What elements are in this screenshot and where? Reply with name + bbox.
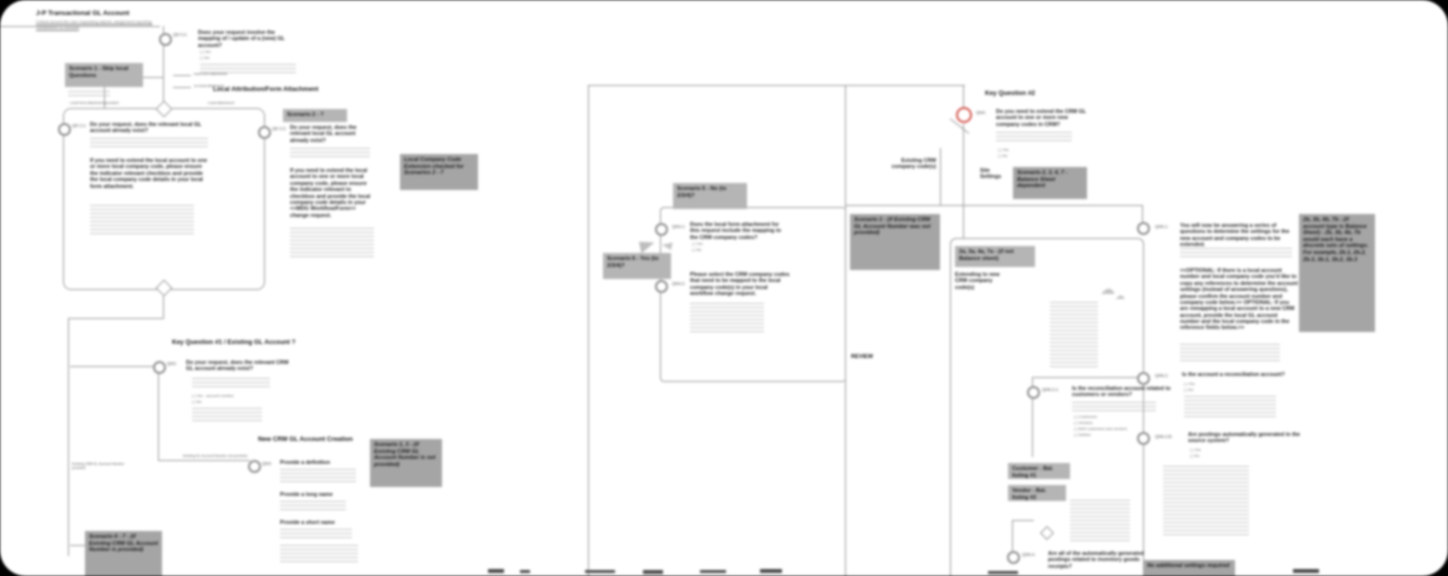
decision-node-qn21[interactable] (58, 123, 71, 136)
scenario-box-2[interactable]: Scenario 2 - ? (283, 109, 347, 122)
decision-node-qn3[interactable] (248, 460, 261, 473)
connector-line (1012, 520, 1013, 553)
cut-off-text-fragment (643, 570, 663, 574)
section-header-kq1: Key Question #1 / Existing GL Account ? (172, 339, 296, 346)
question-text: Does your request involve the mapping of… (198, 30, 286, 49)
connector-line (845, 205, 1142, 206)
fine-print (90, 138, 208, 148)
question-text: Are all of the automatically generated p… (1048, 551, 1158, 570)
node-label: QN 0.1: (173, 32, 188, 37)
decision-node-qn42[interactable] (655, 280, 668, 293)
fine-print (290, 228, 374, 258)
fine-print (280, 545, 358, 565)
scenario-box-1[interactable]: Scenario 1 - Skip local Questions (65, 63, 143, 87)
option[interactable]: ( ) Yes (1184, 382, 1195, 388)
connector-line (1012, 520, 1034, 521)
note-box-local-cc-extension[interactable]: Local Company Code Extension checked for… (400, 154, 478, 190)
connector-label: Existing GL Account Number not provided (183, 454, 247, 458)
cut-off-text-fragment (520, 570, 530, 573)
extending-label: Extending to new CRM company code(s) (955, 272, 1013, 291)
decision-node-qn41[interactable] (655, 223, 668, 236)
form-item: Provide a definition (280, 460, 360, 466)
decision-node-qn2[interactable] (153, 361, 166, 374)
diagram-title: J-P Transactional GL Account (36, 10, 176, 17)
connector-line (1142, 205, 1143, 223)
section-header-local-attachment: Local Attribution/Form Attachment (213, 86, 318, 93)
flowchart-canvas: J-P Transactional GL Account Criteria ar… (0, 0, 1448, 576)
connector-line (68, 318, 164, 319)
connector-line (68, 318, 69, 556)
cloud-icon: ☁ (1115, 291, 1125, 302)
option[interactable]: ( ) Yes (998, 148, 1009, 154)
option[interactable]: ( ) Yes - account number: (192, 394, 234, 400)
fine-print (290, 148, 370, 160)
form-item: Provide a short name (280, 520, 360, 526)
option[interactable]: ( ) No (200, 56, 210, 62)
connector-line (70, 366, 154, 367)
decision-node-qn01[interactable] (159, 33, 172, 46)
fine-print (280, 501, 346, 511)
fine-print (1180, 248, 1292, 260)
connector-line (173, 87, 191, 88)
question-text: Does the local form attachment for this … (690, 222, 790, 241)
node-label: QN6.2.B: (1155, 434, 1173, 439)
question-paragraph: <<OPTIONAL: If there is a local account … (1180, 268, 1298, 332)
fine-print (68, 91, 110, 97)
option[interactable]: ( ) No (1184, 388, 1194, 394)
connector-label: Local form attachment provided (70, 101, 119, 105)
fine-print (192, 378, 270, 390)
connector-line (1032, 377, 1140, 378)
connector-line (70, 545, 85, 546)
node-label: QN4: (976, 110, 986, 115)
question-text: Are postings automatically generated in … (1188, 432, 1308, 445)
fine-print (1070, 500, 1130, 542)
node-label: QN6.4: (1022, 552, 1036, 557)
fine-print (996, 132, 1072, 144)
connector-line (940, 148, 941, 205)
connector-label: Local attachment (208, 101, 234, 105)
section-header-new-account: New CRM GL Account Creation (258, 436, 353, 443)
listing-box-customer[interactable]: Customer - Bal. listing #1 (1008, 463, 1070, 479)
decision-node-qn61[interactable] (1137, 222, 1150, 235)
fine-print (280, 469, 356, 483)
option[interactable]: ( ) Yes (1190, 448, 1201, 454)
branch-label-site-settings: Site Settings (980, 168, 1006, 181)
question-text: Do you need to extend the CRM GL account… (996, 109, 1088, 128)
cloud-icon: ☁ (1100, 280, 1115, 298)
node-label: QN6.2: (1155, 373, 1169, 378)
node-label: QN3: (262, 461, 272, 466)
section-header-kq2: Key Question #2 (985, 90, 1035, 97)
question-text: Is the reconciliation account related to… (1072, 386, 1180, 399)
container-edge (588, 85, 845, 86)
fine-print (690, 303, 764, 335)
scenario-box-2b[interactable]: 2b, 3b, 4b, 7b - (if account type is Bal… (1299, 214, 1375, 332)
scenario-box-4-7[interactable]: Scenario 4 - 7 - (if Existing CRM GL Acc… (85, 531, 162, 576)
node-label: QN2: (167, 361, 177, 366)
question-text: Is the account a reconciliation account? (1182, 372, 1302, 378)
connector-line (1032, 397, 1033, 457)
decision-node-qn22[interactable] (258, 126, 271, 139)
fine-print (192, 408, 262, 424)
decision-node-qn64[interactable] (1007, 551, 1020, 564)
diagram-subtitle: Criteria around the user requesting obje… (36, 19, 168, 30)
connector-line (845, 85, 965, 86)
scenario-box-5[interactable]: Scenario 5 - No (to 2/3/4)? (673, 183, 747, 209)
option[interactable]: ( ) Yes (200, 50, 211, 56)
fine-print (1180, 344, 1280, 364)
option[interactable]: ( ) No (192, 400, 202, 406)
node-label: QN 2.2: (272, 126, 287, 131)
fine-print (90, 205, 194, 235)
fine-print (1050, 302, 1098, 370)
connector-line (158, 460, 250, 461)
listing-box-vendor[interactable]: Vendor - Bal. listing #2 (1008, 485, 1066, 501)
question-text: Do your request, does the relevant CRM G… (186, 360, 290, 373)
question-text: Please select the CRM company codes that… (690, 272, 790, 298)
option[interactable]: ( ) Customers (1074, 415, 1097, 421)
decision-node-qn4-highlighted[interactable] (956, 107, 972, 123)
connector-line (963, 124, 964, 239)
question-paragraph: If you need to extend the local account … (90, 158, 210, 190)
cut-off-text-fragment (988, 571, 1018, 574)
scenario-box-6[interactable]: Scenario 6 - Yes (to 2/3/4)? (603, 253, 671, 279)
option[interactable]: ( ) No (998, 154, 1008, 160)
container-local-questions[interactable] (63, 108, 265, 290)
fine-print (1072, 402, 1156, 412)
cut-off-text-fragment (585, 570, 615, 573)
scenario-box-1-3[interactable]: Scenario 1, 3 - (if Existing CRM GL Acco… (370, 439, 442, 487)
form-item: Provide a long name (280, 492, 360, 498)
branch-label-existing-code: Existing CRM company code(s) (878, 158, 936, 171)
fine-print (1184, 396, 1276, 418)
option[interactable]: ( ) Both customers and vendors (1074, 427, 1127, 433)
node-label: QN6.1: (1155, 224, 1169, 229)
connector-label: Existing CRM GL Account Number provided (72, 462, 136, 470)
node-label: QN 2.1: (72, 123, 87, 128)
scenario-box-1-mid[interactable]: Scenario 1 - (if Existing CRM GL Account… (850, 214, 940, 270)
decision-node-qn62b[interactable] (1137, 432, 1150, 445)
connector-line (963, 85, 964, 109)
container-edge (588, 85, 589, 576)
option[interactable]: ( ) No (1190, 454, 1200, 460)
fine-print (280, 529, 352, 539)
connector-label: local form attachment (194, 72, 227, 76)
option[interactable]: ( ) No (692, 248, 702, 254)
option[interactable]: ( ) Neither (1074, 433, 1091, 439)
option[interactable]: ( ) Yes (692, 242, 703, 248)
question-paragraph: If you need to extend the local account … (290, 168, 374, 219)
connector-line (158, 371, 159, 461)
cut-off-text-fragment (760, 569, 782, 573)
node-label: QN4.1: (672, 224, 686, 229)
cutoff-box[interactable]: No additional settings required (1143, 560, 1235, 576)
review-label: REVIEW (851, 354, 873, 360)
node-label: QN4.2: (672, 281, 686, 286)
cut-off-text-fragment (700, 570, 726, 573)
decision-node-qn621[interactable] (1027, 386, 1040, 399)
scenario-box-2347[interactable]: Scenario 2, 3, 4, 7 - Balance Sheet depe… (1013, 167, 1087, 199)
connector-line (0, 26, 160, 27)
cut-off-text-fragment (1293, 569, 1319, 573)
fine-print (1163, 466, 1249, 538)
paper-plane-icon (639, 239, 656, 254)
scenario-box-2a[interactable]: 2a, 3a, 4a, 7a - (if not Balance sheet) (955, 246, 1035, 267)
question-text: Do your request, does the relevant local… (90, 122, 208, 135)
question-text: You will now be answering a series of qu… (1180, 223, 1298, 249)
cut-off-text-fragment (488, 569, 504, 573)
node-label: QN6.2.1: (1042, 387, 1059, 392)
decision-node-qn62[interactable] (1137, 372, 1150, 385)
question-text: Do your request, does the relevant local… (290, 125, 372, 144)
connector-line (173, 75, 191, 76)
option[interactable]: ( ) Vendors (1074, 421, 1093, 427)
